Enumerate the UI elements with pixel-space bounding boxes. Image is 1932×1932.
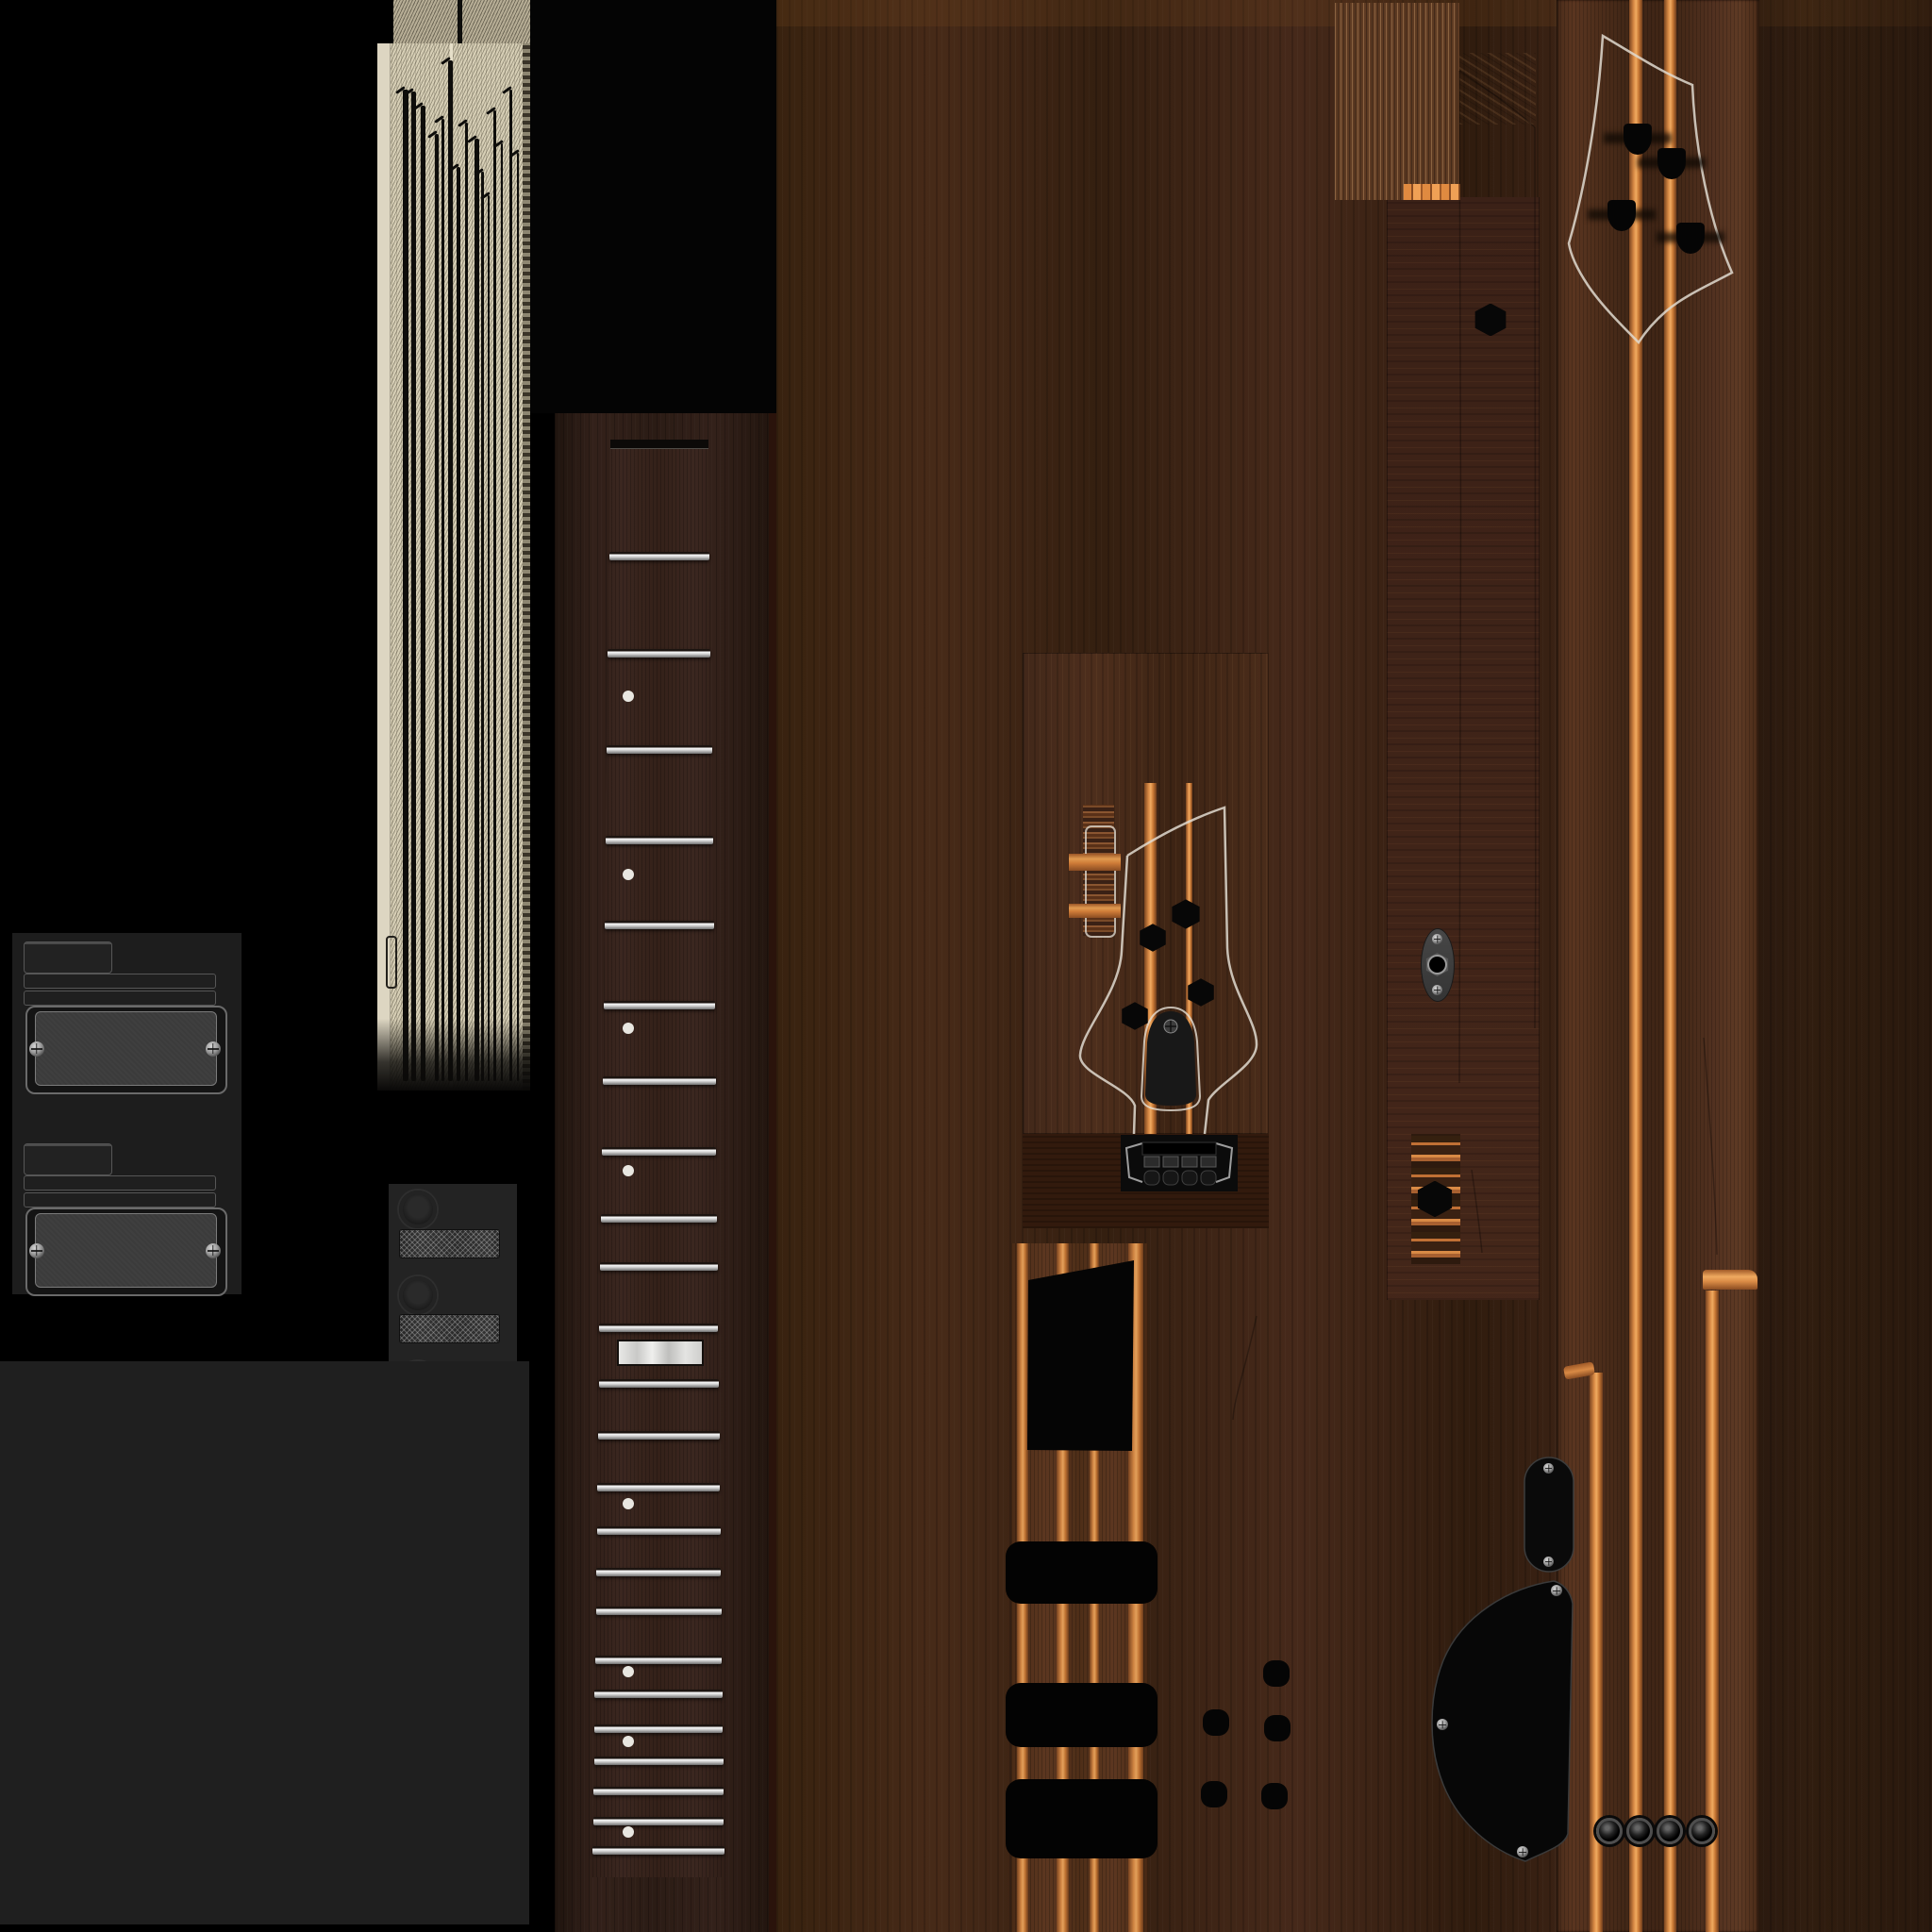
fret-5	[604, 1001, 715, 1009]
fret-19	[594, 1724, 723, 1733]
string-0	[403, 90, 408, 1081]
body-dot-4	[1261, 1783, 1288, 1809]
neck-strip-right-sliver	[769, 413, 776, 1932]
fret-dot-0	[623, 691, 634, 702]
body-dot-1	[1203, 1709, 1229, 1736]
cavity-screw-3	[1517, 1846, 1528, 1857]
fret-12	[598, 1431, 720, 1440]
fret-0	[609, 552, 710, 560]
black-quad-patch	[1027, 1260, 1134, 1451]
cavity-screw-1	[1551, 1585, 1562, 1596]
fret-16	[596, 1607, 722, 1615]
string-1	[411, 92, 416, 1081]
fret-23	[592, 1846, 724, 1855]
pickup-1-screw-left	[29, 1243, 44, 1258]
string-10	[488, 195, 490, 1081]
strings-ball-end-slot	[386, 936, 397, 989]
jack-screw-bottom	[1432, 985, 1442, 995]
pickup-0-screw-right	[206, 1041, 221, 1057]
fret-10	[599, 1324, 718, 1332]
fret-21	[593, 1787, 724, 1795]
body-dot-3	[1201, 1781, 1227, 1807]
fret-dot-7	[623, 1826, 634, 1838]
pickup-0-tab1	[24, 941, 112, 974]
strings-panel-left-border	[377, 43, 391, 1091]
string-7	[465, 123, 468, 1081]
strings-panel-right-serration	[523, 43, 530, 1091]
string-11	[493, 110, 496, 1081]
pickup-0-face	[35, 1011, 217, 1086]
string-2	[421, 106, 425, 1081]
fret-8	[601, 1214, 717, 1223]
string-14	[517, 153, 519, 1081]
truss-rod-cover	[1141, 1008, 1200, 1110]
fret-dot-3	[623, 1165, 634, 1176]
nut	[610, 440, 708, 449]
fret-20	[594, 1757, 724, 1765]
fret-9	[600, 1262, 718, 1271]
twelfth-fret-inlay	[617, 1340, 704, 1366]
knurl-bar-0	[399, 1229, 500, 1258]
body-bridge-piece	[1121, 1135, 1238, 1191]
knob-0	[399, 1191, 437, 1228]
fret-17	[595, 1656, 722, 1664]
strings-bottom-fade	[377, 1019, 530, 1091]
pickup-1-bar2	[24, 1192, 216, 1207]
string-13	[509, 90, 512, 1081]
ferrule-3	[1689, 1818, 1715, 1844]
string-4	[441, 119, 444, 1081]
fret-14	[597, 1526, 721, 1535]
pickup-0-screw-left	[29, 1041, 44, 1057]
fret-11	[599, 1379, 719, 1388]
fret-1	[608, 649, 710, 658]
string-5	[448, 60, 453, 1081]
pickup-route-2	[1006, 1779, 1158, 1858]
pickup-1-screw-right	[206, 1243, 221, 1258]
knob-1	[399, 1276, 437, 1314]
bottom-hardware-panel	[0, 1361, 529, 1924]
pickup-1-tab1	[24, 1143, 112, 1175]
string-12	[501, 143, 503, 1081]
pickup-route-1	[1006, 1683, 1158, 1747]
jack-hole	[1429, 957, 1445, 973]
ferrule-0	[1596, 1818, 1623, 1844]
fret-4	[605, 921, 714, 929]
pickup-route-0	[1006, 1541, 1158, 1604]
pickup-1-bar1	[24, 1175, 216, 1191]
fret-dot-6	[623, 1736, 634, 1747]
string-6	[457, 167, 460, 1081]
fret-2	[607, 745, 712, 754]
body-seam-lines	[1233, 71, 1717, 1420]
jack-screw-top	[1432, 934, 1442, 944]
fret-13	[597, 1483, 720, 1491]
body-dot-2	[1264, 1715, 1291, 1741]
texture-atlas-canvas	[0, 0, 1932, 1932]
fret-dot-1	[623, 869, 634, 880]
pill-screw-2	[1543, 1557, 1554, 1567]
fret-18	[594, 1690, 722, 1698]
fret-dot-4	[623, 1498, 634, 1509]
strings-top-line	[458, 0, 462, 43]
fret-dot-2	[623, 1023, 634, 1034]
pickup-1-face	[35, 1213, 217, 1288]
cavity-screw-2	[1437, 1719, 1448, 1730]
strings-panel	[377, 43, 530, 1091]
ferrule-1	[1626, 1818, 1653, 1844]
pill-screw-1	[1543, 1463, 1554, 1474]
fret-6	[603, 1076, 716, 1085]
fret-7	[602, 1147, 717, 1156]
pickup-0-bar1	[24, 974, 216, 989]
string-3	[435, 134, 439, 1081]
string-8	[475, 139, 479, 1081]
fret-22	[593, 1817, 724, 1825]
string-9	[481, 172, 484, 1081]
fret-3	[606, 836, 713, 844]
headstock-back-outline	[1569, 36, 1732, 342]
black-block	[530, 0, 776, 413]
ferrule-2	[1657, 1818, 1683, 1844]
body-dot-0	[1263, 1660, 1290, 1687]
fret-15	[596, 1568, 721, 1576]
knurl-bar-1	[399, 1314, 500, 1343]
pickup-0-bar2	[24, 991, 216, 1006]
cavity-cover	[1432, 1581, 1573, 1861]
pill-plate	[1524, 1457, 1574, 1572]
fret-dot-5	[623, 1666, 634, 1677]
